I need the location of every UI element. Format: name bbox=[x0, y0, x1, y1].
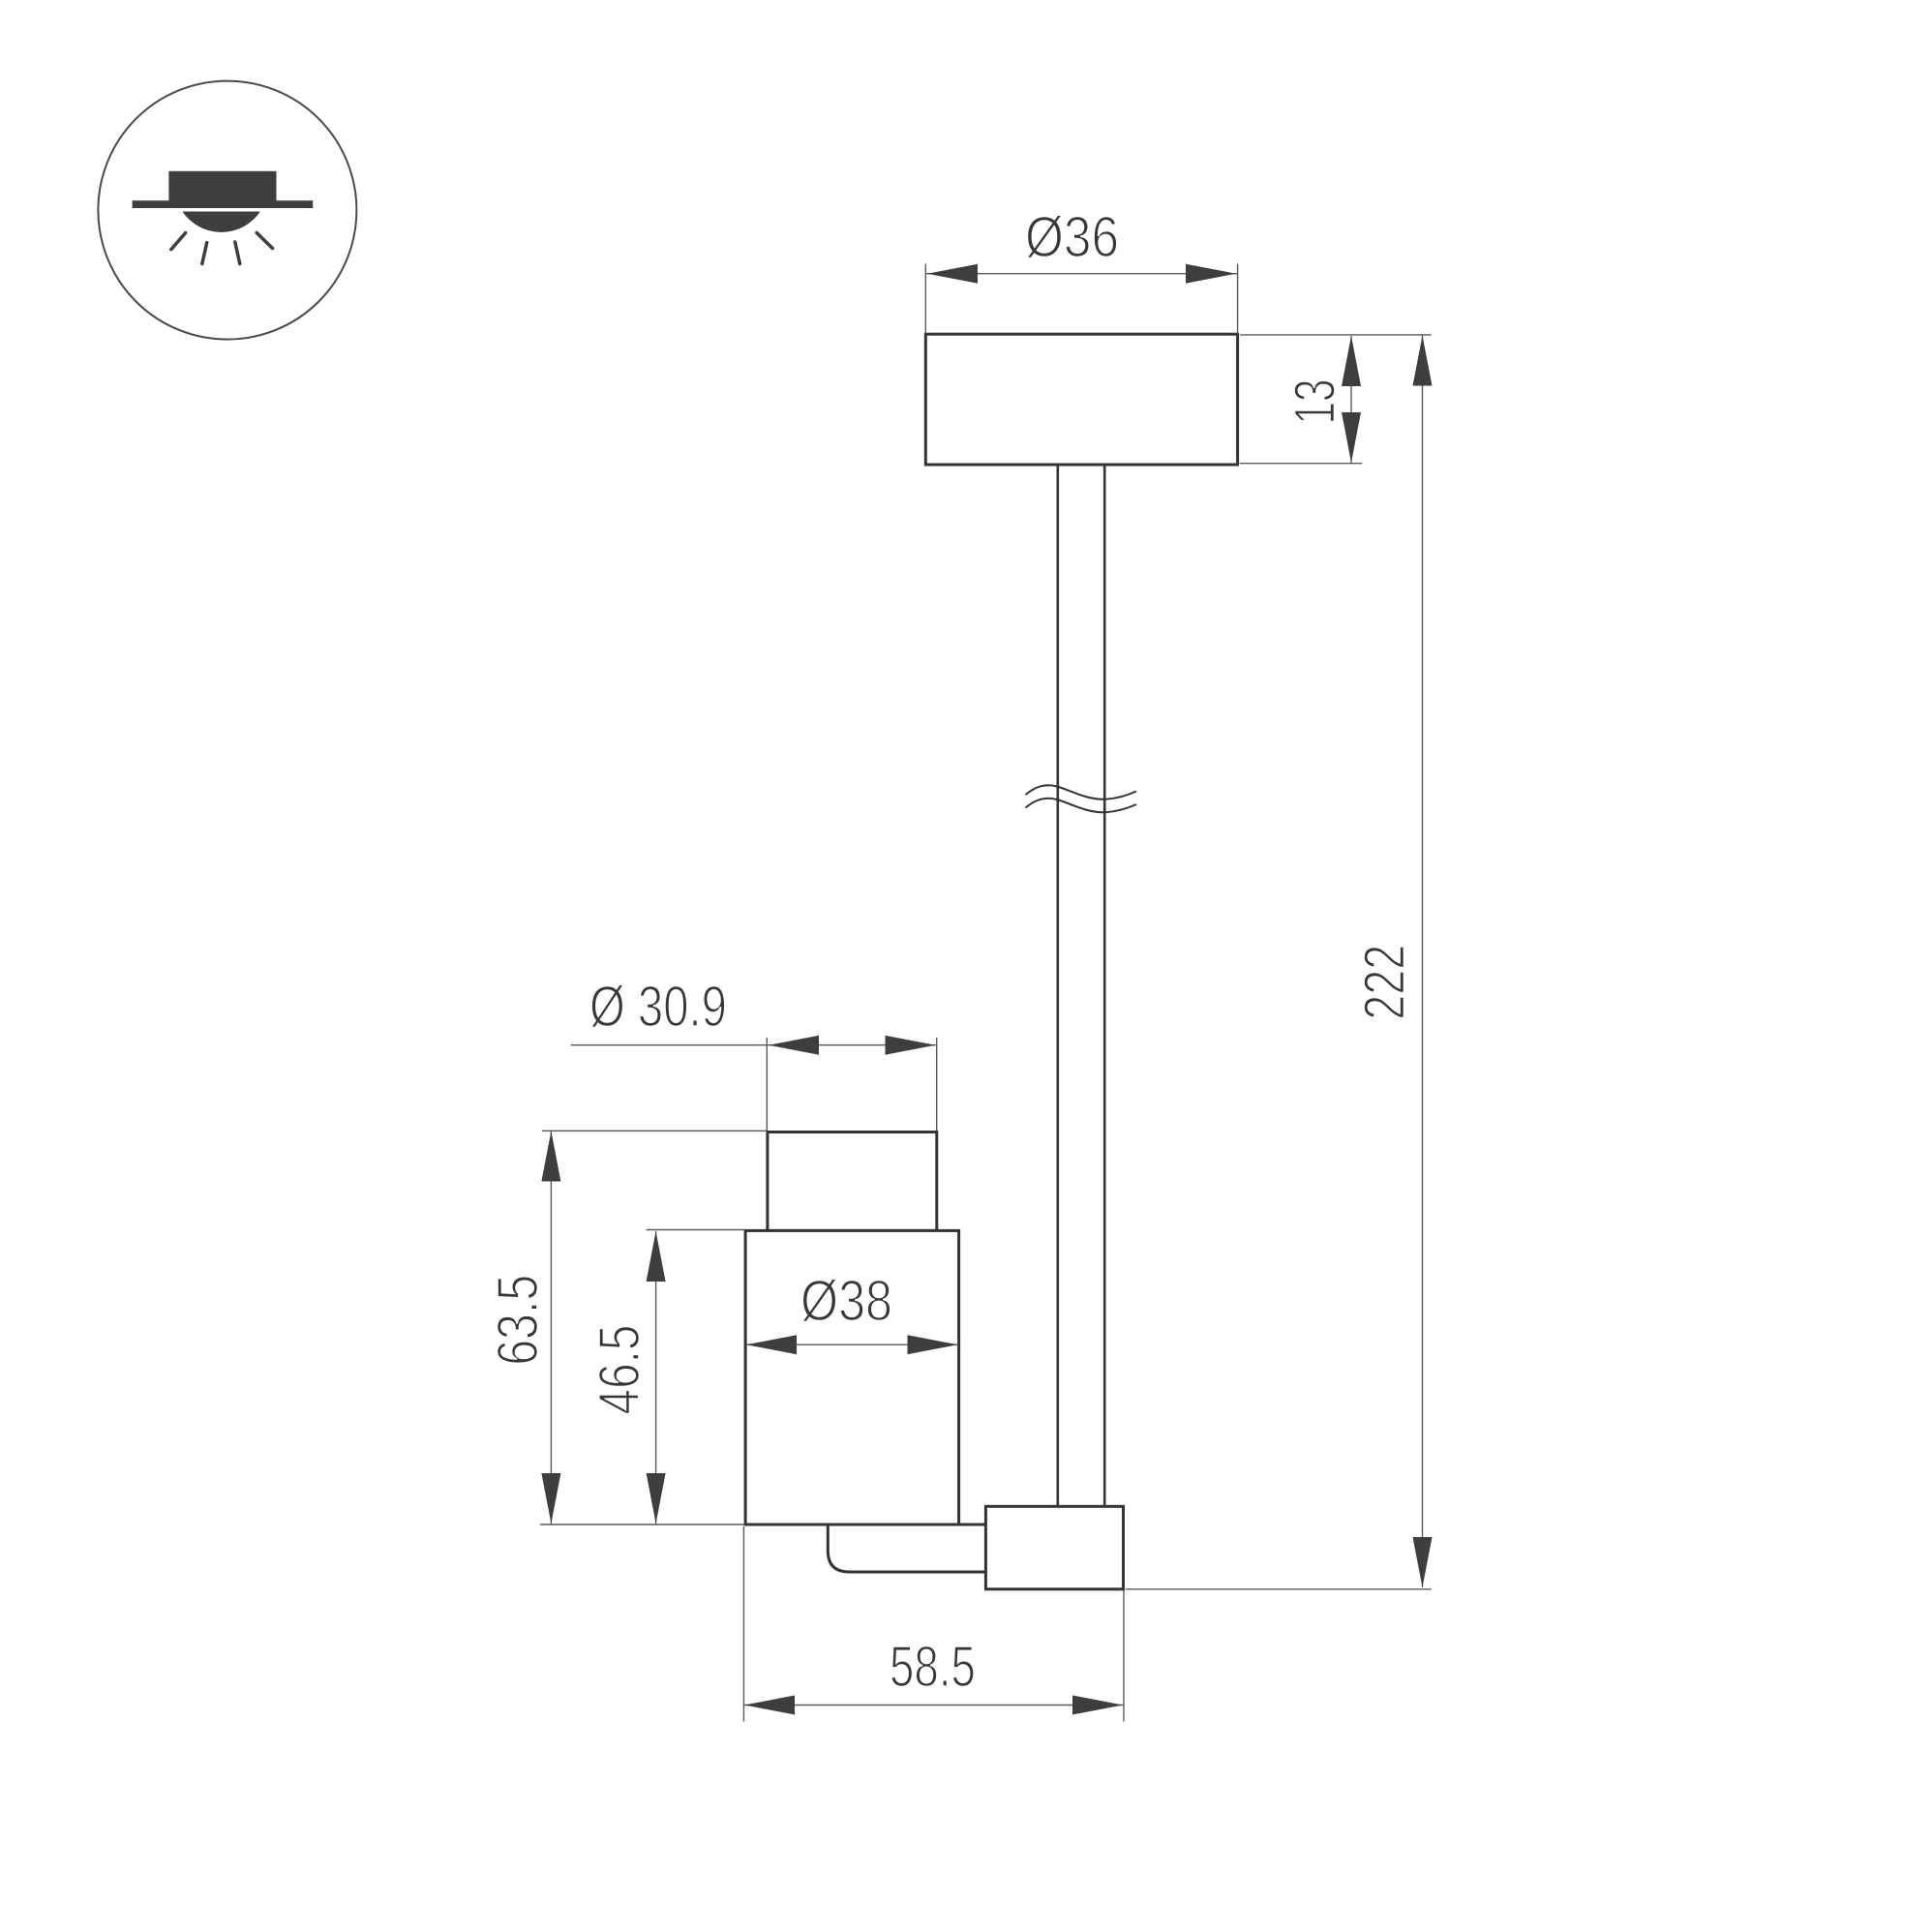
svg-text:Ø38: Ø38 bbox=[800, 1269, 892, 1333]
svg-text:Ø 30.9: Ø 30.9 bbox=[589, 975, 727, 1039]
svg-text:63.5: 63.5 bbox=[486, 1275, 550, 1366]
svg-text:Ø36: Ø36 bbox=[1025, 205, 1119, 269]
svg-text:46.5: 46.5 bbox=[588, 1325, 651, 1415]
svg-text:58.5: 58.5 bbox=[890, 1635, 976, 1699]
svg-text:222: 222 bbox=[1352, 945, 1416, 1020]
svg-text:13: 13 bbox=[1283, 379, 1346, 425]
